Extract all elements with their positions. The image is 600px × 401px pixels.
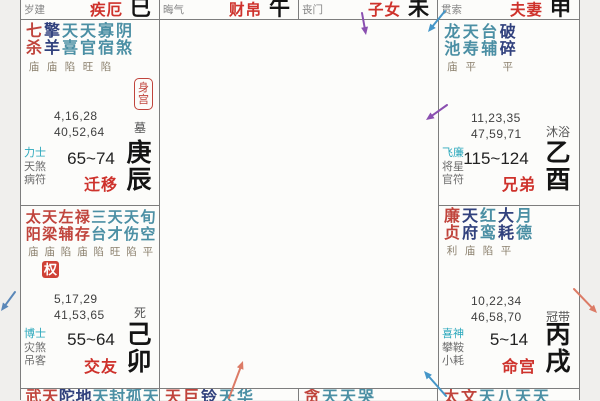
palace-name: 命宫 [489, 353, 549, 377]
star-row: 龙池天寿台辅破碎 [443, 25, 517, 58]
star-name: 巨 [182, 389, 200, 401]
bottom-palace-row: 武天陀地天封孤天 天巨铃天华 贪天天哭 太文天八天天 [21, 388, 579, 401]
star-name: 三台 [91, 210, 107, 243]
brightness-row: 利庙陷平 [443, 245, 533, 257]
brightness-label: 庙 [461, 245, 479, 257]
brightness-label: 陷 [91, 246, 107, 258]
star-name: 天 [478, 389, 496, 401]
palace-cell-hai[interactable]: 太文天八天天 [438, 389, 579, 401]
star-name: 八 [496, 389, 514, 401]
star-name: 哭 [357, 389, 375, 401]
mutation-badge-quan: 权 [42, 261, 59, 278]
star-name: 文 [460, 389, 478, 401]
star-name: 月德 [515, 209, 533, 242]
palace-name: 财帛 [229, 2, 262, 19]
star-name: 天 [514, 389, 532, 401]
star-name: 天喜 [61, 24, 79, 57]
brightness-label: 庙 [25, 246, 41, 258]
life-stage-label: 沐浴 [546, 123, 570, 140]
decade-range: 5~14 [469, 330, 549, 350]
star-name: 天 [164, 389, 182, 401]
palace-cell-chou[interactable]: 天巨铃天华 [160, 389, 299, 401]
palace-cell-zi[interactable]: 贪天天哭 [299, 389, 438, 401]
star-name: 红鸾 [479, 209, 497, 242]
star-row: 廉贞天府红鸾大耗月德 [443, 209, 533, 242]
god-star-label: 攀鞍 [442, 342, 464, 356]
palace-cell-yin[interactable]: 武天陀地天封孤天 [21, 389, 160, 401]
palace-cell-you-xiongdi[interactable]: 龙池天寿台辅破碎 庙平平 11,23,3547,59,71 沐浴 飞廉将星官符 … [438, 19, 579, 206]
star-name: 太 [442, 389, 460, 401]
star-name: 禄存 [74, 210, 90, 243]
stem-branch: 丙戌 [543, 322, 573, 376]
god-star-label: 喜神 [442, 328, 464, 342]
star-name: 寡宿 [97, 24, 115, 57]
star-name: 大耗 [497, 209, 515, 242]
palace-cell-wei[interactable]: 丧门 子女 未 [299, 0, 438, 19]
star-name: 天 [92, 389, 109, 401]
star-name: 天 [218, 389, 236, 401]
palace-cell-si[interactable]: 岁建 疾厄 巳 [21, 0, 160, 19]
palace-cell-xu-minggong[interactable]: 廉贞天府红鸾大耗月德 利庙陷平 10,22,3446,58,70 冠带 喜神攀鞍… [438, 206, 579, 388]
brightness-label: 庙 [74, 246, 90, 258]
decade-range: 115~124 [453, 149, 539, 169]
god-star-label: 小耗 [442, 355, 464, 369]
minor-limit-ages: 4,16,2840,52,64 [54, 109, 105, 140]
brightness-label: 平 [140, 246, 156, 258]
brightness-row: 庙庙陷旺陷 [25, 61, 133, 73]
god-star-list: 力士天煞病符 [24, 147, 46, 188]
star-row: 太阳天梁左辅禄存三台天才天伤旬空 [25, 210, 156, 243]
brightness-label [515, 245, 533, 257]
palace-name: 迁移 [71, 171, 131, 195]
star-name: 天 [142, 389, 159, 401]
star-name: 天 [321, 389, 339, 401]
star-row: 七杀擎羊天喜天官寡宿阴煞 [25, 24, 133, 57]
palace-name: 兄弟 [489, 171, 549, 195]
ziwei-chart-screenshot: 岁建 疾厄 巳 晦气 财帛 午 丧门 子女 未 贯索 夫妻 申 七杀擎羊天喜天官… [0, 0, 600, 400]
life-stage-label: 死 [134, 304, 146, 321]
body-palace-badge: 身宫 [134, 78, 153, 110]
star-name: 天寿 [462, 25, 481, 58]
star-name: 武 [25, 389, 42, 401]
brightness-label: 庙 [43, 61, 61, 73]
star-name: 天府 [461, 209, 479, 242]
star-name: 七杀 [25, 24, 43, 57]
stem-branch: 乙酉 [543, 140, 573, 194]
star-name: 阴煞 [115, 24, 133, 57]
star-name: 天 [339, 389, 357, 401]
palace-cell-wu[interactable]: 晦气 财帛 午 [160, 0, 299, 19]
god-star-list: 喜神攀鞍小耗 [442, 328, 464, 369]
god-star-label: 灾煞 [24, 342, 46, 356]
god-star-label: 天煞 [24, 161, 46, 175]
brightness-label: 庙 [25, 61, 43, 73]
brightness-label: 陷 [479, 245, 497, 257]
star-name: 龙池 [443, 25, 462, 58]
star-name: 廉贞 [443, 209, 461, 242]
star-name: 破碎 [499, 25, 518, 58]
palace-cell-mao-jiaoyou[interactable]: 太阳天梁左辅禄存三台天才天伤旬空 庙庙陷庙陷旺陷平 权 5,17,2941,53… [21, 206, 160, 388]
star-name: 贪 [303, 389, 321, 401]
year-god-label: 贯索 [441, 4, 510, 17]
earthly-branch: 申 [550, 0, 571, 19]
minor-limit-ages: 11,23,3547,59,71 [471, 111, 522, 142]
star-name: 擎羊 [43, 24, 61, 57]
palace-name: 子女 [368, 2, 401, 19]
palace-name: 夫妻 [510, 2, 543, 19]
brightness-row: 庙庙陷庙陷旺陷平 [25, 246, 156, 258]
earthly-branch: 巳 [130, 0, 151, 19]
year-god-label: 丧门 [302, 4, 368, 17]
star-name: 天伤 [123, 210, 139, 243]
brightness-label: 陷 [58, 246, 74, 258]
minor-limit-ages: 5,17,2941,53,65 [54, 292, 105, 323]
brightness-row: 庙平平 [443, 61, 517, 73]
star-name: 天 [532, 389, 550, 401]
god-star-label: 博士 [24, 328, 46, 342]
annotation-arrow [1, 292, 15, 311]
star-name: 天梁 [41, 210, 57, 243]
decade-range: 55~64 [51, 330, 131, 350]
god-star-label: 吊客 [24, 355, 46, 369]
brightness-label: 平 [499, 61, 518, 73]
life-stage-label: 墓 [134, 119, 146, 136]
brightness-label [115, 61, 133, 73]
star-name: 封 [109, 389, 126, 401]
brightness-label: 庙 [443, 61, 462, 73]
minor-limit-ages: 10,22,3446,58,70 [471, 294, 522, 325]
palace-name: 疾厄 [90, 2, 123, 19]
brightness-label: 陷 [61, 61, 79, 73]
star-name: 地 [75, 389, 92, 401]
star-name: 天官 [79, 24, 97, 57]
brightness-label: 平 [497, 245, 515, 257]
stem-branch: 己卯 [124, 322, 154, 376]
brightness-label: 旺 [79, 61, 97, 73]
earthly-branch: 午 [269, 0, 290, 19]
star-name: 孤 [126, 389, 143, 401]
star-name: 旬空 [140, 210, 156, 243]
top-palace-row: 岁建 疾厄 巳 晦气 财帛 午 丧门 子女 未 贯索 夫妻 申 [21, 0, 579, 20]
star-name: 铃 [200, 389, 218, 401]
star-name: 太阳 [25, 210, 41, 243]
decade-range: 65~74 [51, 149, 131, 169]
brightness-label: 庙 [41, 246, 57, 258]
star-name: 华 [236, 389, 254, 401]
brightness-label: 陷 [123, 246, 139, 258]
god-star-label: 力士 [24, 147, 46, 161]
brightness-label: 利 [443, 245, 461, 257]
brightness-label [480, 61, 499, 73]
star-name: 台辅 [480, 25, 499, 58]
brightness-label: 平 [462, 61, 481, 73]
star-name: 天 [42, 389, 59, 401]
god-star-label: 官符 [442, 174, 464, 188]
star-name: 天才 [107, 210, 123, 243]
god-star-label: 病符 [24, 174, 46, 188]
palace-name: 交友 [71, 353, 131, 377]
palace-cell-shen[interactable]: 贯索 夫妻 申 [438, 0, 579, 19]
palace-cell-chen-qianyi[interactable]: 七杀擎羊天喜天官寡宿阴煞 庙庙陷旺陷 身宫 4,16,2840,52,64 墓 … [21, 19, 160, 206]
brightness-label: 陷 [97, 61, 115, 73]
star-name: 陀 [59, 389, 76, 401]
year-god-label: 晦气 [163, 4, 229, 17]
god-star-list: 博士灾煞吊客 [24, 328, 46, 369]
earthly-branch: 未 [408, 0, 429, 19]
star-name: 左辅 [58, 210, 74, 243]
year-god-label: 岁建 [24, 4, 90, 17]
brightness-label: 旺 [107, 246, 123, 258]
stem-branch: 庚辰 [124, 140, 154, 194]
ziwei-chart-grid: 岁建 疾厄 巳 晦气 财帛 午 丧门 子女 未 贯索 夫妻 申 七杀擎羊天喜天官… [20, 0, 580, 400]
